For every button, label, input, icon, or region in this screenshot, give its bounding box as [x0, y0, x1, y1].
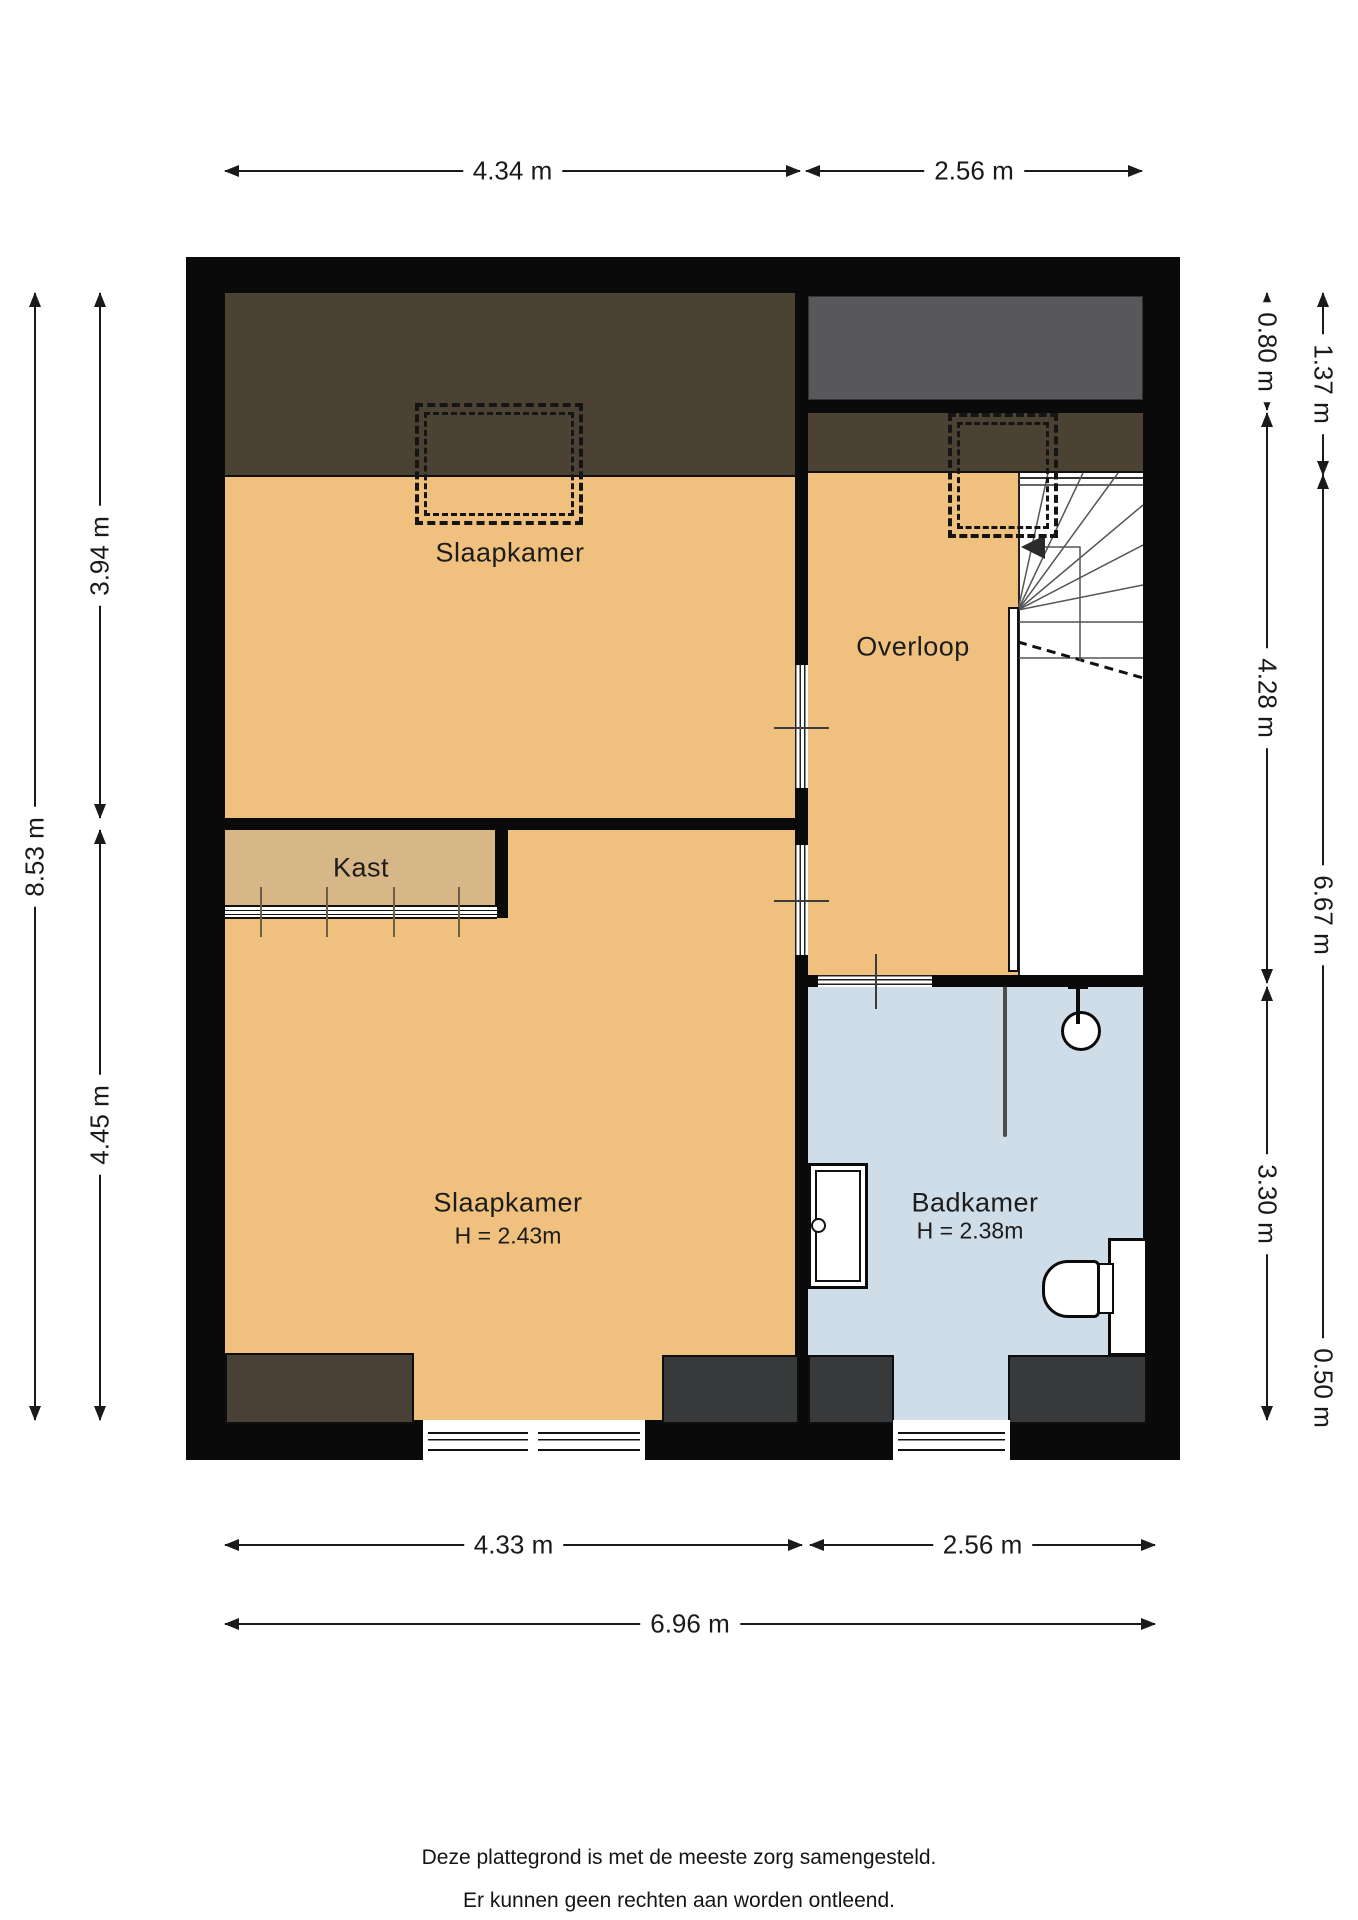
- closet-sliding-doors: [225, 905, 497, 919]
- dim-right-bathroom: 3.30 m: [1266, 987, 1268, 1420]
- knee-wall-block-center: [662, 1355, 799, 1424]
- window-bedroom-bottom: [423, 1420, 645, 1460]
- toilet-bowl: [1042, 1260, 1100, 1318]
- door-bedroom-bottom: [795, 845, 808, 955]
- door-bathroom: [818, 975, 932, 987]
- dim-bottom-left: 4.33 m: [225, 1544, 802, 1546]
- label-closet: Kast: [333, 853, 389, 884]
- label-bedroom-bottom: Slaapkamer: [433, 1188, 582, 1219]
- dim-right-void: 0.80 m: [1266, 293, 1268, 410]
- shower-screen: [1003, 987, 1007, 1137]
- staircase: [1018, 473, 1143, 975]
- knee-wall-block-bedroom: [225, 1353, 414, 1424]
- dim-top-left: 4.34 m: [225, 170, 800, 172]
- dim-left-lower: 4.45 m: [99, 830, 101, 1420]
- faucet-icon: [811, 1218, 826, 1233]
- roof-window-left: [415, 403, 583, 525]
- label-landing: Overloop: [856, 632, 970, 663]
- dim-right-outer-bottom: 0.50 m: [1322, 1355, 1324, 1420]
- knee-wall-block-bath-right: [1008, 1355, 1147, 1424]
- room-bedroom-bottom: [225, 918, 795, 1420]
- disclaimer-line-1: Deze plattegrond is met de meeste zorg s…: [0, 1846, 1358, 1870]
- shower-stem-cap: [1068, 985, 1088, 989]
- stair-banister: [1008, 607, 1019, 972]
- window-bedroomtop-landing: [795, 665, 808, 788]
- dim-right-outer-top: 1.37 m: [1322, 293, 1324, 475]
- dim-bottom-total: 6.96 m: [225, 1623, 1155, 1625]
- knee-wall-block-bath-left: [808, 1355, 894, 1424]
- shower-stem: [1076, 988, 1080, 1024]
- dim-right-outer-mid: 6.67 m: [1322, 475, 1324, 1355]
- dim-left-upper: 3.94 m: [99, 293, 101, 818]
- washbasin: [808, 1163, 868, 1289]
- dim-left-total: 8.53 m: [34, 293, 36, 1420]
- dim-bottom-right: 2.56 m: [810, 1544, 1155, 1546]
- room-bedroom-bottom-ext: [508, 830, 795, 918]
- toilet-duct: [1108, 1238, 1148, 1356]
- shower-head-icon: [1061, 1011, 1101, 1051]
- disclaimer-line-2: Er kunnen geen rechten aan worden ontlee…: [0, 1889, 1358, 1913]
- roof-window-right: [948, 413, 1058, 538]
- label-bedroom-bottom-height: H = 2.43m: [455, 1223, 562, 1250]
- dim-top-right: 2.56 m: [806, 170, 1142, 172]
- window-bathroom: [893, 1420, 1010, 1460]
- floorplan-canvas: Slaapkamer Overloop Kast Slaapkamer H = …: [0, 0, 1358, 1920]
- void-zone: [808, 296, 1143, 400]
- label-bedroom-top: Slaapkamer: [435, 538, 584, 569]
- room-landing: [808, 473, 1018, 975]
- label-bathroom-height: H = 2.38m: [917, 1218, 1024, 1245]
- dim-right-landing: 4.28 m: [1266, 413, 1268, 983]
- label-bathroom: Badkamer: [911, 1188, 1038, 1219]
